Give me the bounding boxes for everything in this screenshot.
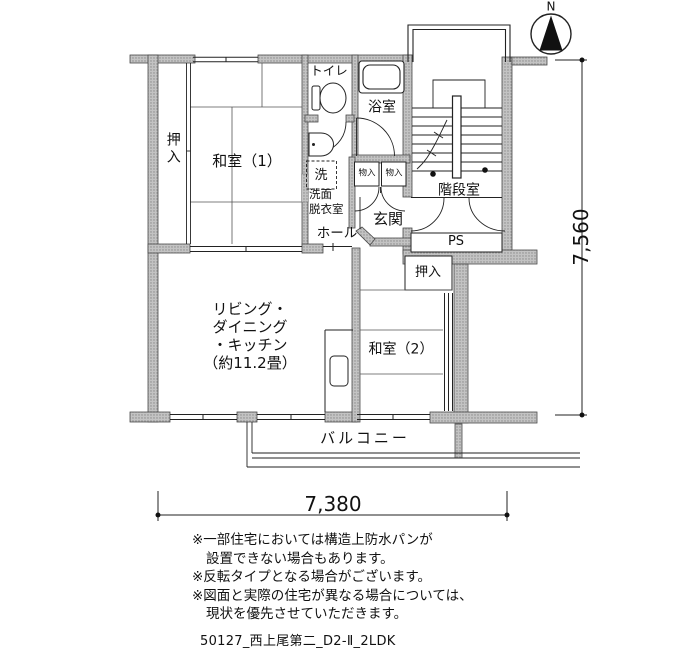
north-compass-icon — [531, 14, 571, 54]
room-label-hall: ホール — [317, 227, 358, 242]
storage-door-arcs — [355, 187, 405, 211]
staircase — [411, 80, 505, 231]
room-label-balcony: バルコニー — [320, 430, 410, 447]
room-label-senmen-1: 洗面 — [309, 188, 332, 201]
bathtub — [359, 61, 404, 93]
room-label-ldk: リビング・ ダイニング ・キッチン （約11.2畳） — [203, 300, 296, 372]
note-line: ※反転タイプとなる場合がございます。 — [192, 568, 473, 587]
walls — [130, 55, 547, 458]
compass-north-label: N — [547, 0, 556, 13]
room-label-washitsu1: 和室（1） — [212, 153, 282, 170]
room-label-storage1: 物入 — [358, 169, 375, 178]
washbasin — [309, 133, 334, 156]
room-label-washer: 洗 — [314, 169, 327, 183]
genkan-diagonal-wall — [356, 227, 375, 245]
ldk-line-3: ・キッチン — [203, 336, 296, 354]
note-line: 現状を優先させていただきます。 — [192, 605, 473, 624]
room-label-storage2: 物入 — [385, 169, 402, 178]
room-label-oshiire1: 押入 — [164, 132, 179, 166]
kitchen-counter — [325, 330, 353, 412]
stair-block-outline — [408, 25, 510, 62]
dimension-width-label: 7,380 — [304, 493, 361, 515]
room-label-ps: PS — [448, 235, 464, 249]
ldk-line-4: （約11.2畳） — [203, 354, 296, 372]
note-line: ※図面と実際の住宅が異なる場合については、 — [192, 587, 473, 606]
dimension-height-label: 7,560 — [570, 208, 592, 265]
room-label-bath: 浴室 — [368, 100, 396, 115]
note-line: ※一部住宅においては構造上防水パンが — [192, 531, 473, 550]
toilet-fixture — [312, 83, 346, 113]
washroom-sliding-door — [302, 174, 309, 202]
room-label-washitsu2: 和室（2） — [369, 342, 434, 357]
kitchen-sink — [330, 356, 348, 386]
room-label-oshiire2: 押入 — [415, 266, 441, 280]
note-line: 設置できない場合もあります。 — [192, 550, 473, 569]
closet1-front — [187, 63, 191, 244]
stair-entrance-door-arc — [469, 198, 505, 231]
floorplan-page: 和室（1） 押入 トイレ 浴室 洗 洗面 脱衣室 物入 物入 玄関 ホール 階段… — [0, 0, 700, 650]
stair-handrail — [453, 96, 462, 178]
room-label-toilet: トイレ — [310, 64, 348, 78]
bath-door — [357, 118, 395, 156]
room-label-senmen-2: 脱衣室 — [309, 203, 344, 216]
notes-block: ※一部住宅においては構造上防水パンが 設置できない場合もあります。 ※反転タイプ… — [192, 531, 473, 624]
stair-entrance-door-arc — [411, 198, 444, 231]
room-label-genkan: 玄関 — [373, 211, 403, 228]
balcony-outline — [247, 422, 580, 467]
dimension-lines — [156, 58, 588, 522]
room-label-stairwell: 階段室 — [438, 183, 480, 198]
plan-id-footer: 50127_西上尾第二_D2-Ⅱ_2LDK — [200, 630, 396, 649]
ldk-line-1: リビング・ — [203, 300, 296, 318]
ldk-line-2: ダイニング — [203, 318, 296, 336]
